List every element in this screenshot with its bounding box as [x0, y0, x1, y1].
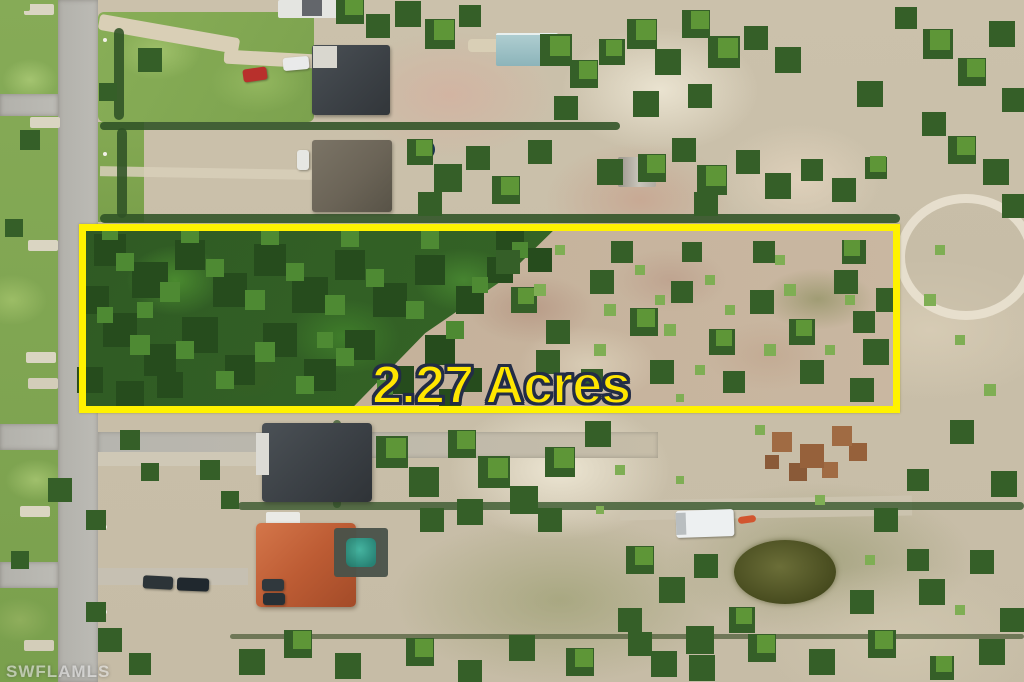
courtyard-notch	[313, 46, 337, 68]
pond	[734, 540, 836, 604]
parked-car-1	[143, 575, 174, 590]
aerial-photo: 2.27 Acres SWFLAMLS	[0, 0, 1024, 682]
box-truck	[676, 509, 735, 538]
street-branch-mid	[0, 424, 58, 450]
house-roof-top-edge	[278, 0, 346, 18]
parked-car-4	[263, 593, 285, 605]
white-car	[297, 150, 309, 170]
house-roof-charcoal-upper	[312, 45, 390, 115]
mailbox-dots	[0, 0, 4, 4]
kayak	[738, 515, 757, 524]
street-branch-top	[0, 94, 58, 116]
mls-watermark: SWFLAMLS	[6, 662, 110, 682]
white-suv	[282, 56, 309, 71]
fence-line-bottom	[230, 634, 1024, 639]
garage-wall	[256, 433, 269, 475]
hedge-vertical-2	[117, 128, 127, 218]
parked-car-2	[177, 577, 209, 591]
hedge-line-south	[238, 502, 1024, 510]
street-branch-low	[0, 562, 58, 588]
acreage-label: 2.27 Acres	[372, 354, 630, 416]
swimming-pool	[346, 538, 376, 567]
shed	[618, 157, 656, 187]
round-pool	[414, 139, 435, 160]
house-roof-charcoal-lower	[262, 423, 372, 502]
roof-section	[302, 0, 322, 16]
truck-cab	[676, 513, 687, 535]
parked-car-3	[262, 579, 284, 591]
driveway-lower-house	[98, 452, 260, 466]
cleared-sand-circle	[896, 194, 1024, 320]
pool-enclosure	[334, 528, 388, 577]
hedge-vertical-1	[114, 28, 124, 120]
hedge-line-north-boundary	[100, 214, 900, 223]
house-roof-teal	[496, 33, 558, 66]
house-roof-gray-middle	[312, 140, 392, 212]
hedge-line-upper	[100, 122, 620, 130]
driveway-stubs	[0, 0, 30, 11]
